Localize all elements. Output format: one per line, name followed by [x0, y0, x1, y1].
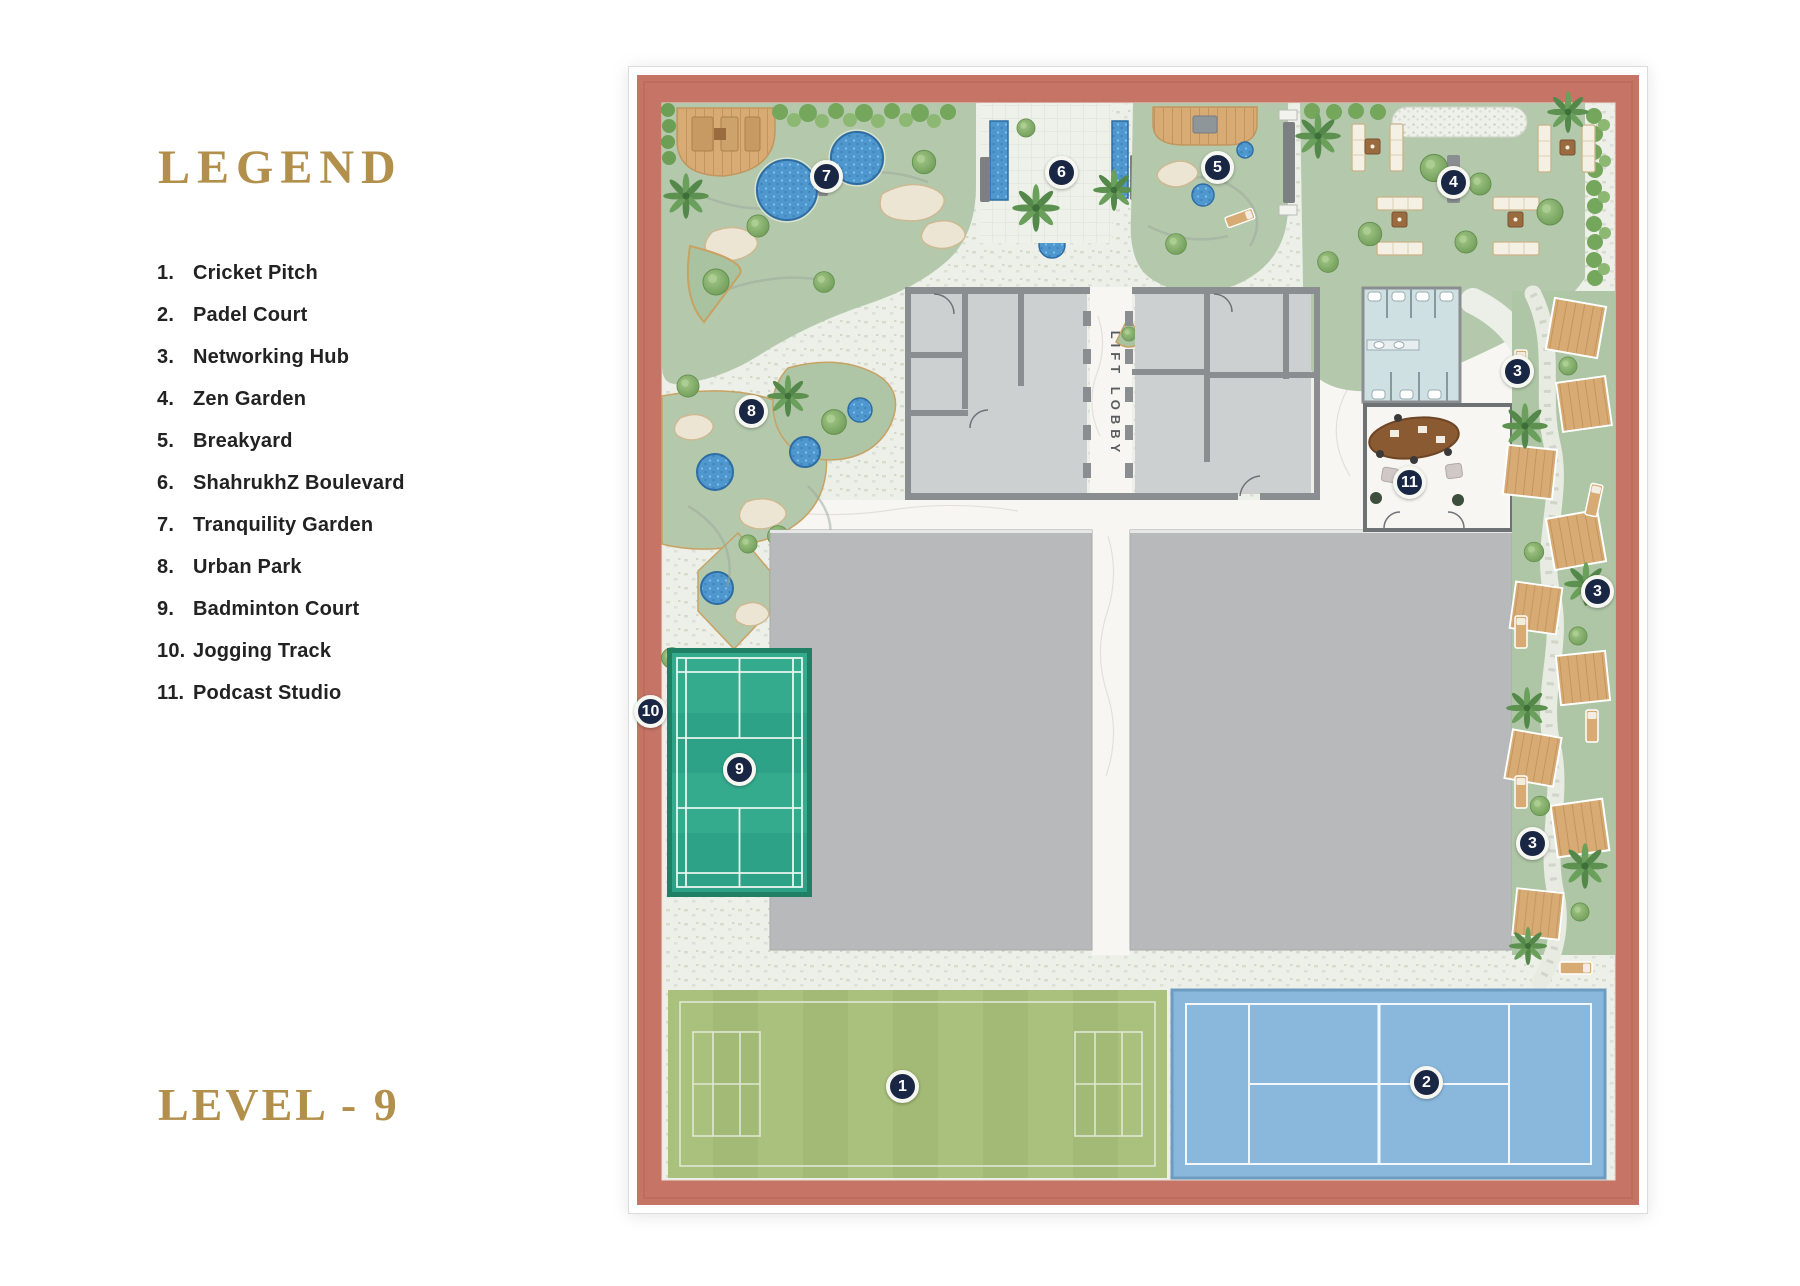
marker-jogging-track: 10	[634, 695, 667, 728]
marker-urban-park: 8	[735, 395, 768, 428]
legend-list: 1.Cricket Pitch 2.Padel Court 3.Networki…	[157, 262, 405, 724]
legend-item: 3.Networking Hub	[157, 346, 405, 388]
legend-item: 1.Cricket Pitch	[157, 262, 405, 304]
networking-hub	[1502, 291, 1615, 982]
legend-item: 11.Podcast Studio	[157, 682, 405, 724]
legend-item: 4.Zen Garden	[157, 388, 405, 430]
legend-item: 9.Badminton Court	[157, 598, 405, 640]
marker-tranquility-garden: 7	[810, 160, 843, 193]
marker-breakyard: 5	[1201, 151, 1234, 184]
marker-networking-hub: 3	[1516, 827, 1549, 860]
floor-plan: LIFT LOBBY	[628, 66, 1648, 1214]
marker-cricket-pitch: 1	[886, 1070, 919, 1103]
legend-item: 2.Padel Court	[157, 304, 405, 346]
brochure-page: LEGEND 1.Cricket Pitch 2.Padel Court 3.N…	[0, 0, 1800, 1286]
roof-slabs	[770, 530, 1512, 950]
floor-plan-drawing: LIFT LOBBY	[628, 66, 1648, 1214]
legend-item: 10.Jogging Track	[157, 640, 405, 682]
marker-boulevard: 6	[1045, 156, 1078, 189]
legend-item: 8.Urban Park	[157, 556, 405, 598]
marker-padel-court: 2	[1410, 1066, 1443, 1099]
podcast-studio	[1365, 405, 1512, 530]
boulevard-pool	[990, 121, 1008, 200]
lift-lobby-label: LIFT LOBBY	[1108, 331, 1123, 458]
pebble-patch	[1392, 107, 1527, 137]
marker-zen-garden: 4	[1437, 166, 1470, 199]
restrooms	[1363, 288, 1460, 402]
marker-networking-hub: 3	[1501, 355, 1534, 388]
marker-podcast-studio: 11	[1393, 466, 1426, 499]
legend-item: 5.Breakyard	[157, 430, 405, 472]
marker-badminton-court: 9	[723, 753, 756, 786]
padel-court	[1172, 990, 1605, 1178]
level-label: LEVEL - 9	[158, 1078, 400, 1131]
legend-item: 7.Tranquility Garden	[157, 514, 405, 556]
marker-networking-hub: 3	[1581, 575, 1614, 608]
legend-item: 6.ShahrukhZ Boulevard	[157, 472, 405, 514]
legend-title: LEGEND	[158, 140, 403, 195]
